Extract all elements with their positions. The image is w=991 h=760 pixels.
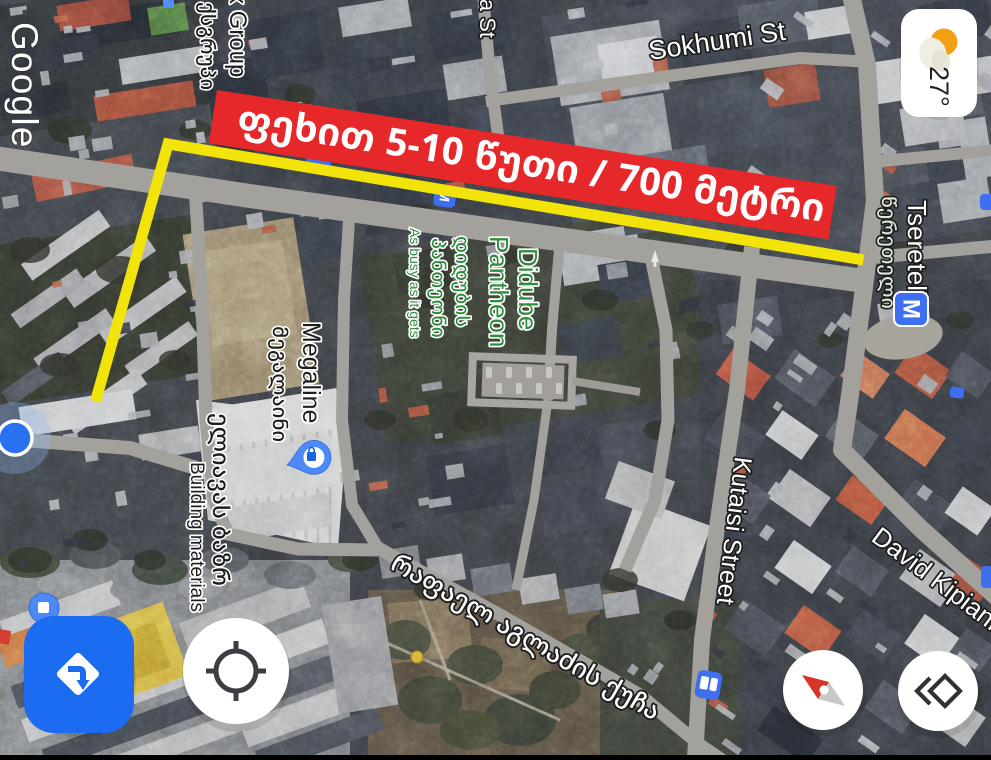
svg-text:M: M	[898, 299, 925, 319]
svg-text:Tsereteli: Tsereteli	[902, 200, 932, 297]
svg-text:Google: Google	[4, 22, 45, 149]
svg-text:As busy as it gets: As busy as it gets	[407, 228, 423, 338]
svg-text:x Group: x Group	[224, 0, 251, 77]
svg-text:27°: 27°	[924, 66, 954, 107]
svg-text:ia St: ia St	[475, 0, 500, 38]
svg-text:Building materials: Building materials	[186, 462, 207, 612]
svg-text:Didube: Didube	[513, 248, 543, 330]
svg-text:Pantheon: Pantheon	[484, 236, 514, 347]
svg-text:Megaline: Megaline	[297, 322, 325, 423]
